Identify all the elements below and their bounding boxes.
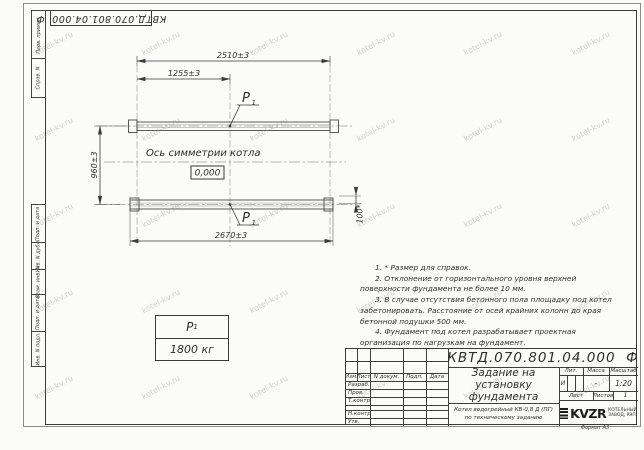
dimension-left: 960±3 [90,126,128,205]
designation-box-rotated: КВТД.070.801.04.000 Ф [50,10,152,26]
tb-col-sign: Подп. [403,373,426,381]
tb-scale-value: 1:20 [609,375,638,391]
load-table-symbol-sub: 1 [193,323,197,331]
tb-document-title: Задание на установку фундамента [448,367,559,403]
dimension-bottom: 2670±3 [130,211,333,246]
dimension-mid: 1255±3 [137,69,230,84]
tb-lit-value: И [559,375,567,391]
tb-col-date: Дата [426,373,448,381]
tb-col-doc: N докум. [370,373,403,381]
tb-row-tkontr: Т.контр. [346,397,370,405]
scanned-drawing-sheet: { "sheet": { "designation_top": "КВТД.07… [0,0,644,430]
tb-designation: КВТД.070.801.04.000 Ф [448,349,638,367]
load-sub-bottom: 1 [252,219,256,227]
margin-box-sprav-n: Справ. N [31,58,46,98]
dimension-right-value: 100* [356,204,365,223]
foundation-plan-figure: 2510±3 1255±3 960±3 2670±3 100* P 1 [80,40,380,255]
load-label-top: P [242,91,250,106]
load-sub-top: 1 [252,99,256,107]
load-value-table: P1 1800 кг [155,315,229,361]
note-1: 1. * Размер для справок. [360,263,628,274]
company-logo: KVZR КОТЕЛЬНЫЙ ЗАВОД, РЭП [559,400,638,426]
margin-label: Подп. и дата [36,206,42,240]
dimension-bottom-value: 2670±3 [215,231,247,240]
tb-row-utv: Утв. [346,418,370,426]
company-subtitle: КОТЕЛЬНЫЙ ЗАВОД, РЭП [608,408,637,419]
tb-col-izm: Изм. [346,373,357,381]
margin-label: Подп. и дата [36,296,42,330]
tb-sheets-value: 1 [613,391,638,400]
dimension-top-value: 2510±3 [217,51,249,60]
elevation-value: 0,000 [195,169,221,179]
margin-label: Инв. N подл. [36,332,42,365]
tb-product-line2: по техническому заданию [465,415,543,422]
dimension-left-value: 960±3 [90,151,99,178]
load-table-symbol: P [186,320,193,334]
margin-box-inv-podl: Инв. N подл. [31,331,46,367]
tb-row-razrab: Разраб. [346,381,370,389]
tb-product-line1: Котел водогрейный КВ-0,8 Д (ПГ) [454,407,553,414]
title-block: Изм. Лист N докум. Подп. Дата Разраб. Пр… [345,348,637,425]
dimension-right: 100* [339,189,365,224]
note-2: 2. Отклонение от горизонтального уровня … [360,274,628,295]
symmetry-axis-label: Ось симметрии котла [146,148,261,159]
tb-row-prov: Пров. [346,389,370,397]
tb-col-list: Лист [357,373,370,381]
company-logo-text: KVZR [570,406,606,421]
company-subtitle-line2: ЗАВОД, РЭП [608,413,637,419]
note-4: 4. Фундамент под котел разрабатывает про… [360,327,628,348]
load-label-bottom: P [242,211,250,226]
elevation-mark: 0,000 [191,166,224,179]
margin-box-podp-data-1: Подп. и дата [31,204,46,243]
margin-label: Справ. N [36,67,42,90]
load-table-header: P1 [156,316,228,339]
margin-box-podp-data-2: Подп. и дата [31,294,46,332]
tb-mass-label: Масса [583,367,609,375]
designation-text-rotated: КВТД.070.801.04.000 Ф [36,13,166,24]
dimension-top: 2510±3 [137,51,330,66]
coil-logo-icon [560,408,568,419]
tb-lit-label: Лит. [559,367,583,375]
tb-row-nkontr: Н.контр. [346,410,370,418]
load-table-value: 1800 кг [156,339,228,361]
dimension-mid-value: 1255±3 [168,69,200,78]
tb-product-name: Котел водогрейный КВ-0,8 Д (ПГ) по техни… [448,403,559,426]
note-3: 3. В случае отсутствия бетонного пола пл… [360,295,628,327]
tb-mass-value: - [583,375,609,391]
tb-sheets-label: Листов [593,391,613,400]
tb-sheet-label: Лист [559,391,593,400]
tb-scale-label: Масштаб [609,367,638,375]
load-point-bottom: P 1 [229,203,259,227]
notes-block: 1. * Размер для справок. 2. Отклонение о… [360,263,628,349]
margin-box-vzam-inv: Взам. инв. N [31,269,46,295]
